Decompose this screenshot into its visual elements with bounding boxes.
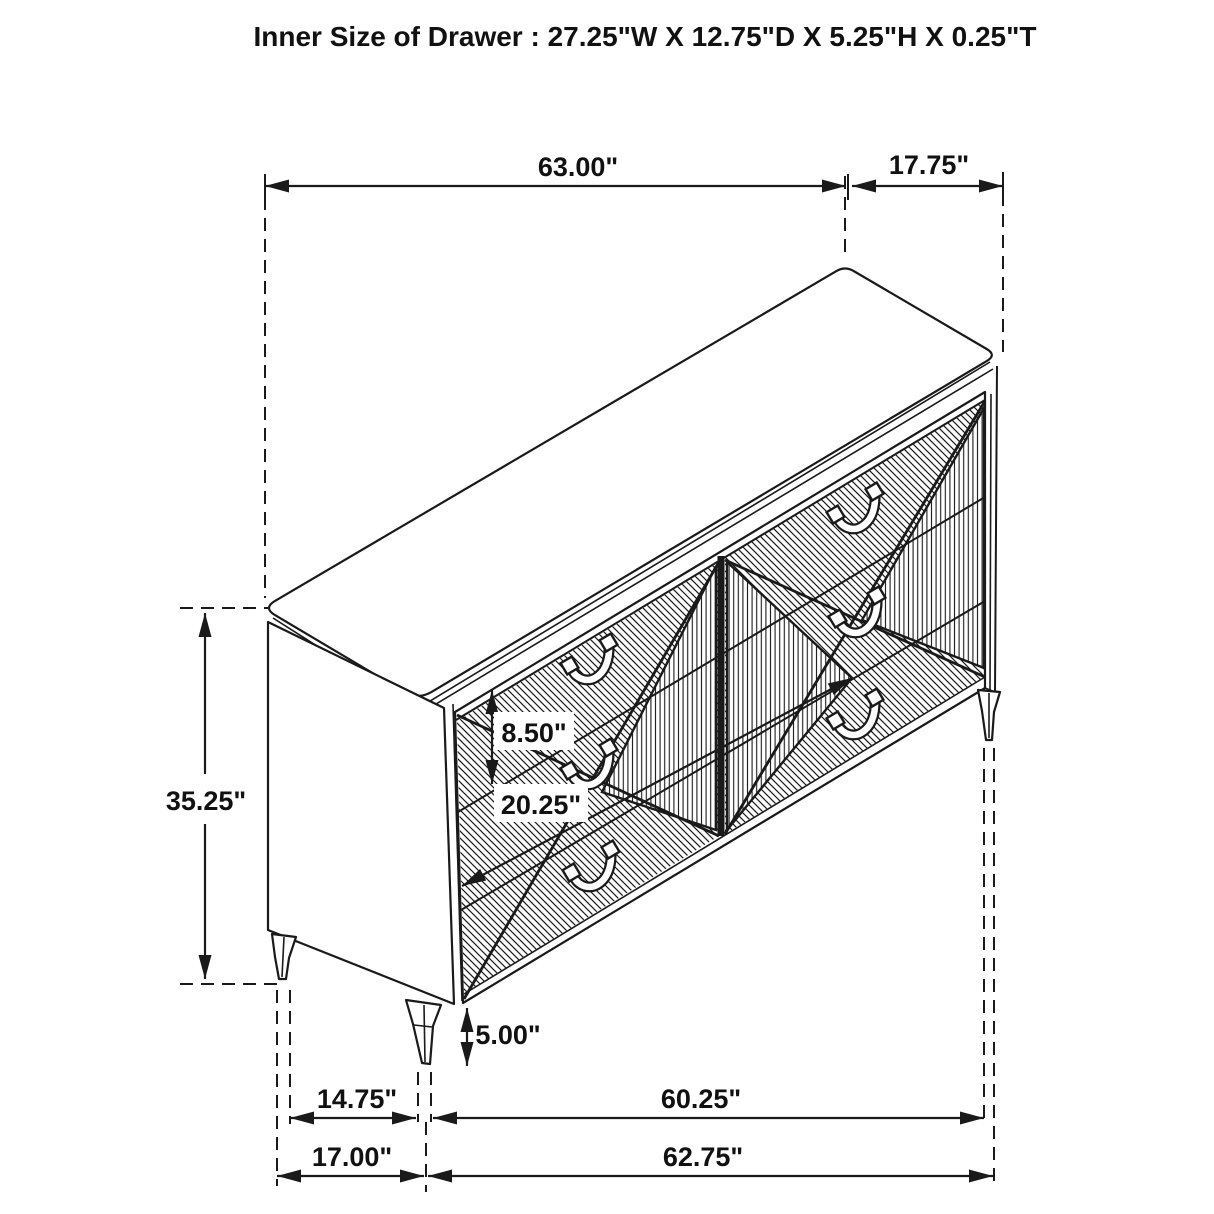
dresser-drawing — [268, 269, 1000, 1064]
dim-label-top-width: 63.00" — [538, 152, 618, 182]
diagram-canvas: Inner Size of Drawer : 27.25"W X 12.75"D… — [0, 0, 1214, 1214]
dim-label-front-leg-span: 60.25" — [661, 1084, 741, 1114]
right-edge — [985, 366, 997, 692]
dim-label-height: 35.25" — [166, 786, 246, 816]
dim-label-leg-height: 5.00" — [475, 1020, 540, 1050]
dim-label-side-leg-span: 14.75" — [317, 1084, 397, 1114]
dim-label-side-base: 17.00" — [312, 1142, 392, 1172]
dim-label-top-depth: 17.75" — [889, 150, 969, 180]
diagram-title: Inner Size of Drawer : 27.25"W X 12.75"D… — [254, 21, 1037, 52]
dresser-dimension-diagram: Inner Size of Drawer : 27.25"W X 12.75"D… — [0, 0, 1214, 1214]
dim-label-drawer-width: 20.25" — [501, 790, 581, 820]
dim-label-drawer-height: 8.50" — [501, 718, 566, 748]
dim-label-front-base: 62.75" — [663, 1142, 743, 1172]
